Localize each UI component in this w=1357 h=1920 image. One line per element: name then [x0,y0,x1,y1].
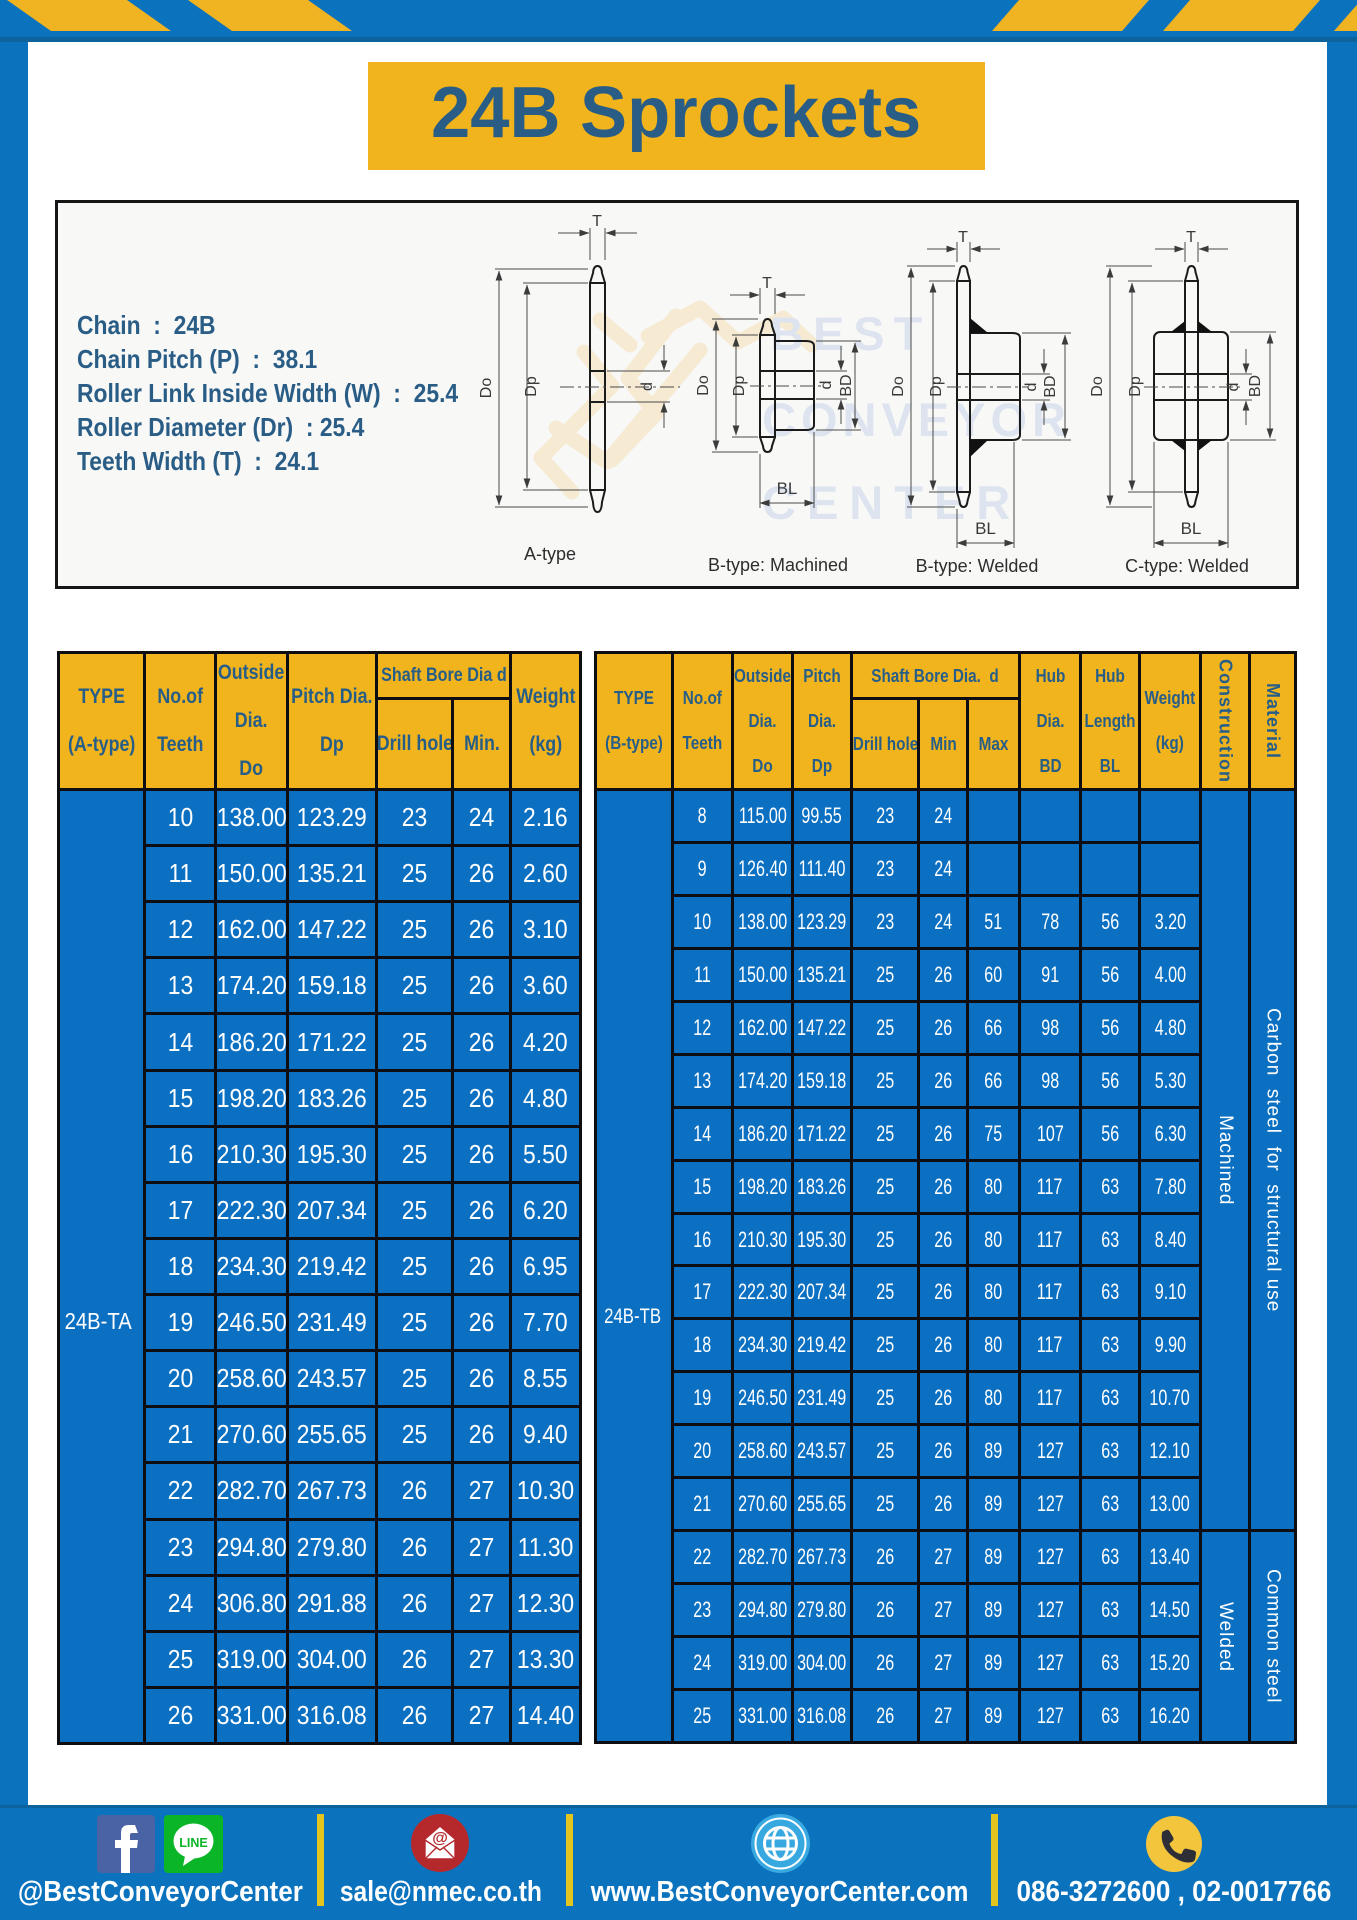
svg-text:T: T [1186,229,1196,246]
svg-text:CONVEYOR: CONVEYOR [762,393,1071,446]
svg-text:BEST: BEST [770,307,931,360]
svg-text:Dp: Dp [928,376,945,397]
svg-text:BL: BL [777,479,798,498]
svg-text:Do: Do [890,376,907,397]
svg-text:B-type: Machined: B-type: Machined [708,555,848,575]
svg-text:Do: Do [1089,376,1106,397]
svg-text:Dp: Dp [731,376,748,397]
svg-text:BD: BD [1247,375,1264,397]
svg-text:B-type: Welded: B-type: Welded [916,556,1039,576]
svg-text:T: T [958,229,968,246]
svg-text:A-type: A-type [524,544,576,564]
svg-text:T: T [592,213,602,230]
svg-text:d: d [818,381,835,390]
svg-text:BL: BL [1181,519,1202,538]
svg-text:@: @ [432,1830,448,1847]
svg-text:Dp: Dp [1127,376,1144,397]
svg-text:C-type: Welded: C-type: Welded [1125,556,1249,576]
svg-text:BL: BL [975,519,996,538]
svg-text:BD: BD [838,374,855,396]
svg-text:Do: Do [695,375,712,396]
svg-text:LINE: LINE [179,1836,207,1850]
svg-text:Dp: Dp [523,376,540,397]
svg-text:T: T [762,275,772,292]
svg-text:BD: BD [1042,375,1059,397]
